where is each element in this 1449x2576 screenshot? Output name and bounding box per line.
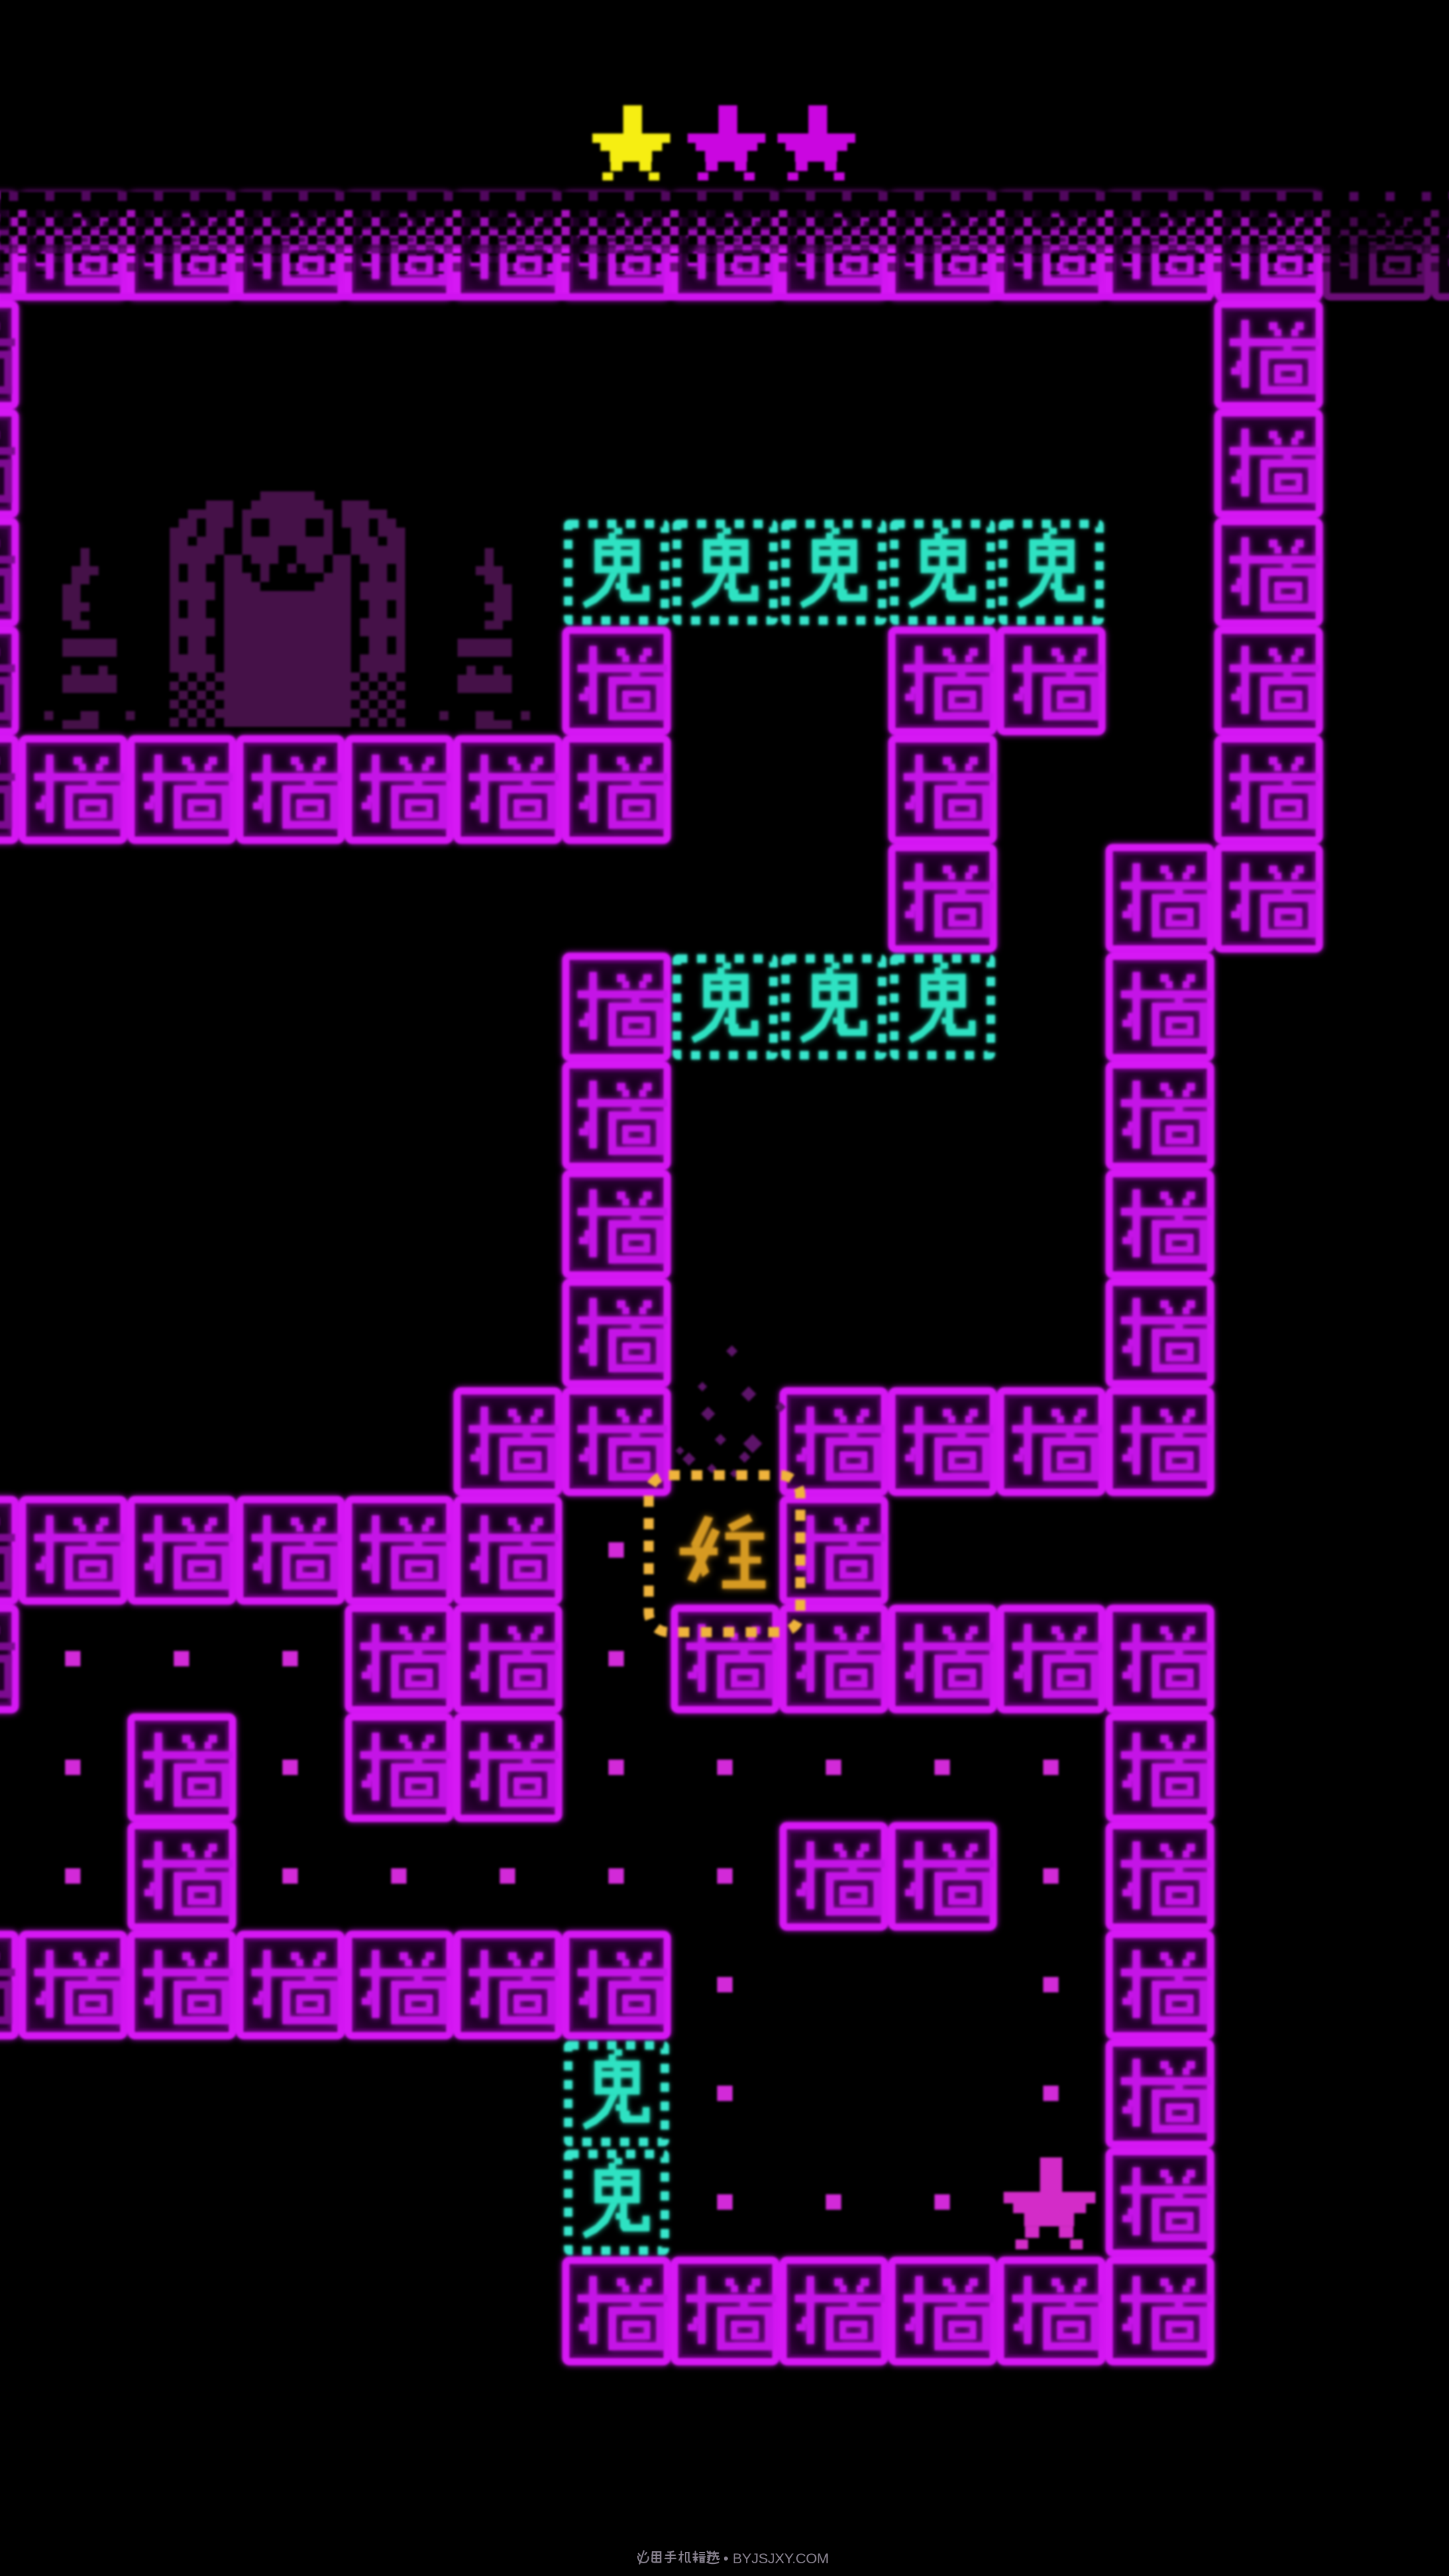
svg-text:BYJSJXY.COM: BYJSJXY.COM: [733, 2551, 828, 2567]
